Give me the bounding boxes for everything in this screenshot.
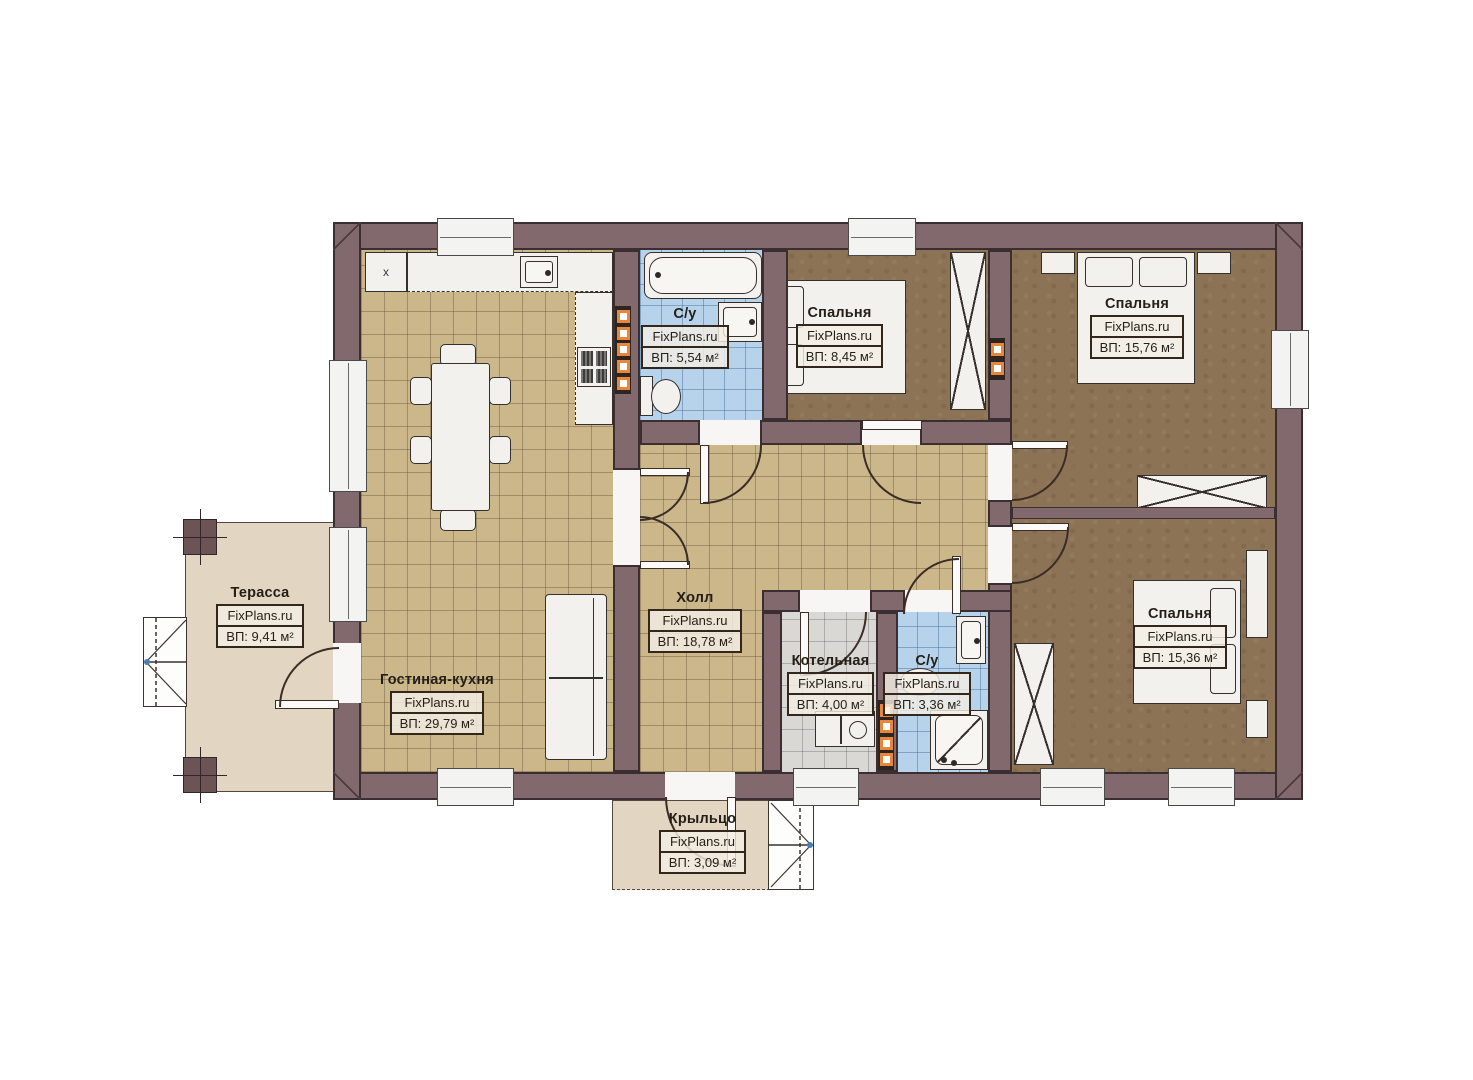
dining-chair-left-2 <box>410 436 432 464</box>
watermark-text: FixPlans.ru <box>798 326 881 347</box>
corner-miter-tl <box>333 222 361 250</box>
washing-machine <box>815 711 875 747</box>
room-info-box: FixPlans.ru ВП: 4,00 м² <box>787 672 874 716</box>
wardrobe-1 <box>950 252 986 410</box>
wall-hall-top-1 <box>640 420 700 445</box>
room-label-terrace: Терасса FixPlans.ru ВП: 9,41 м² <box>190 585 330 648</box>
shower-head <box>951 760 957 766</box>
corner-miter-tr <box>1275 222 1303 250</box>
outer-wall-left <box>333 222 361 800</box>
room-title: С/у <box>625 306 745 322</box>
bedroom-3-door-opening <box>988 527 1012 583</box>
dresser-3 <box>1246 550 1268 638</box>
wall-boiler-top-2 <box>870 590 905 612</box>
wardrobe-3 <box>1014 643 1054 765</box>
room-area: ВП: 4,00 м² <box>789 695 872 714</box>
bathtub-basin <box>649 257 757 294</box>
porch-steps-lines <box>769 801 813 889</box>
sofa <box>545 594 607 760</box>
bedroom-1-door-leaf <box>862 420 922 430</box>
dining-chair-right-2 <box>489 436 511 464</box>
washing-machine-divider <box>840 714 842 744</box>
entrance-door-opening <box>665 772 735 800</box>
room-label-boiler-room: Котельная FixPlans.ru ВП: 4,00 м² <box>773 653 888 716</box>
room-area: ВП: 3,36 м² <box>885 695 968 714</box>
bed-2-pillow-left <box>1085 257 1133 287</box>
corner-miter-br <box>1275 772 1303 800</box>
wall-hall-bedrooms-pier <box>988 500 1012 527</box>
nightstand-3 <box>1246 700 1268 738</box>
bed-2-pillow-right <box>1139 257 1187 287</box>
wall-boiler-top-1 <box>762 590 800 612</box>
room-area: ВП: 9,41 м² <box>218 627 301 646</box>
window-bedroom2-right <box>1271 330 1309 409</box>
kitchen-counter-top <box>407 252 613 292</box>
room-label-living-kitchen: Гостиная-кухня FixPlans.ru ВП: 29,79 м² <box>367 672 507 735</box>
window-living-bottom <box>437 768 514 806</box>
room-label-bedroom-2: Спальня FixPlans.ru ВП: 15,76 м² <box>1072 296 1202 359</box>
kitchen-sink <box>520 256 558 288</box>
room-info-box: FixPlans.ru ВП: 29,79 м² <box>390 691 485 735</box>
terrace-steps-lines <box>144 618 186 706</box>
room-label-hall: Холл FixPlans.ru ВП: 18,78 м² <box>635 590 755 653</box>
room-info-box: FixPlans.ru ВП: 3,36 м² <box>883 672 970 716</box>
wall-bedroom2-bedroom3 <box>1012 507 1275 519</box>
floor-plan: x <box>0 0 1473 1080</box>
room-info-box: FixPlans.ru ВП: 9,41 м² <box>216 604 303 648</box>
room-area: ВП: 15,36 м² <box>1135 648 1226 667</box>
dining-table <box>431 363 490 511</box>
vent-bedrooms <box>989 338 1005 380</box>
room-title: Терасса <box>190 585 330 601</box>
room-area: ВП: 5,54 м² <box>643 348 726 367</box>
room-title: Спальня <box>1115 606 1245 622</box>
bathtub <box>644 252 762 299</box>
washbasin-2-drain <box>974 638 980 644</box>
watermark-text: FixPlans.ru <box>1135 627 1226 648</box>
terrace-post-top <box>183 519 217 555</box>
room-title: Холл <box>635 590 755 606</box>
watermark-text: FixPlans.ru <box>661 832 744 853</box>
room-title: Гостиная-кухня <box>367 672 507 688</box>
room-area: ВП: 29,79 м² <box>392 714 483 733</box>
washbasin-1-drain <box>749 319 755 325</box>
wall-hall-top-3 <box>920 420 1012 445</box>
outer-wall-right <box>1275 222 1303 800</box>
wall-boiler-top-3 <box>958 590 1012 612</box>
window-bedroom3-bottom-2 <box>1168 768 1235 806</box>
room-info-box: FixPlans.ru ВП: 3,09 м² <box>659 830 746 874</box>
room-area: ВП: 18,78 м² <box>650 632 741 651</box>
dining-chair-left-1 <box>410 377 432 405</box>
toilet-1-bowl <box>651 379 681 414</box>
porch-steps <box>768 800 814 890</box>
watermark-text: FixPlans.ru <box>218 606 301 627</box>
room-title: С/у <box>872 653 982 669</box>
bedroom-2-door-opening <box>988 445 1012 500</box>
sofa-seat-divider <box>549 677 603 679</box>
washing-machine-door <box>849 721 867 739</box>
kitchen-sink-drain <box>545 270 551 276</box>
corner-miter-bl <box>333 772 361 800</box>
watermark-text: FixPlans.ru <box>789 674 872 695</box>
stove-burners <box>581 351 607 383</box>
stove <box>577 347 611 387</box>
dining-chair-right-1 <box>489 377 511 405</box>
shower-drain <box>941 757 947 763</box>
room-label-bedroom-1: Спальня FixPlans.ru ВП: 8,45 м² <box>772 305 907 368</box>
wall-hall-top-2 <box>760 420 862 445</box>
room-title: Котельная <box>773 653 888 669</box>
wall-bedroom1-bedroom2 <box>988 250 1012 420</box>
watermark-text: FixPlans.ru <box>885 674 968 695</box>
terrace-post-bottom <box>183 757 217 793</box>
room-info-box: FixPlans.ru ВП: 15,76 м² <box>1090 315 1185 359</box>
window-living-left <box>329 360 367 492</box>
room-area: ВП: 8,45 м² <box>798 347 881 366</box>
nightstand-2-left <box>1041 252 1075 274</box>
window-bedroom1-top <box>848 218 916 256</box>
living-hall-opening <box>613 470 640 565</box>
room-area: ВП: 15,76 м² <box>1092 338 1183 357</box>
room-info-box: FixPlans.ru ВП: 18,78 м² <box>648 609 743 653</box>
room-info-box: FixPlans.ru ВП: 5,54 м² <box>641 325 728 369</box>
room-info-box: FixPlans.ru ВП: 8,45 м² <box>796 324 883 368</box>
room-label-bedroom-3: Спальня FixPlans.ru ВП: 15,36 м² <box>1115 606 1245 669</box>
room-title: Спальня <box>1072 296 1202 312</box>
room-label-bathroom-1: С/у FixPlans.ru ВП: 5,54 м² <box>625 306 745 369</box>
watermark-text: FixPlans.ru <box>1092 317 1183 338</box>
window-boiler-bottom <box>793 768 859 806</box>
room-info-box: FixPlans.ru ВП: 15,36 м² <box>1133 625 1228 669</box>
bathroom-1-door-opening <box>700 420 760 445</box>
watermark-text: FixPlans.ru <box>650 611 741 632</box>
window-terrace-left <box>329 527 367 622</box>
wardrobe-2 <box>1137 475 1267 509</box>
room-label-porch: Крыльцо FixPlans.ru ВП: 3,09 м² <box>640 811 765 874</box>
nightstand-2-right <box>1197 252 1231 274</box>
room-title: Крыльцо <box>640 811 765 827</box>
dining-chair-bottom <box>440 509 476 531</box>
shower <box>930 710 988 770</box>
room-label-bathroom-2: С/у FixPlans.ru ВП: 3,36 м² <box>872 653 982 716</box>
window-kitchen-top <box>437 218 514 256</box>
fridge: x <box>365 252 407 292</box>
watermark-text: FixPlans.ru <box>643 327 726 348</box>
terrace-steps <box>143 617 187 707</box>
room-area: ВП: 3,09 м² <box>661 853 744 872</box>
watermark-text: FixPlans.ru <box>392 693 483 714</box>
window-bedroom3-bottom-1 <box>1040 768 1105 806</box>
bathtub-faucet <box>655 272 661 278</box>
boiler-door-opening <box>800 590 870 612</box>
fridge-marker: x <box>383 265 389 279</box>
room-title: Спальня <box>772 305 907 321</box>
